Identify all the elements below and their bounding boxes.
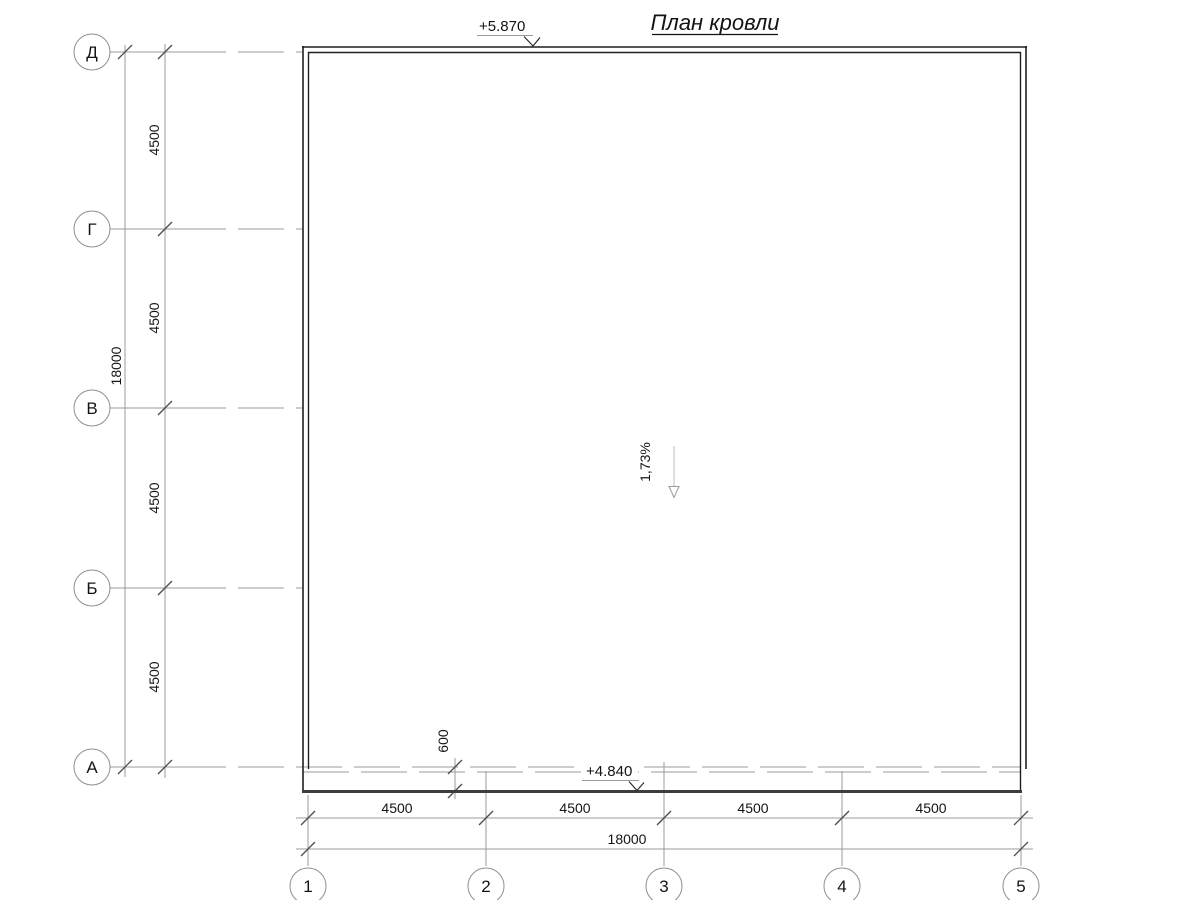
row-axis-bubbles: Д Г В Б А <box>74 34 110 785</box>
axis-label-a: А <box>86 758 98 777</box>
dimension-ticks <box>118 45 1028 856</box>
axis-label-3: 3 <box>659 877 668 896</box>
dimension-lines <box>125 44 1033 866</box>
roof-outline <box>302 46 1027 792</box>
dim-label: 4500 <box>381 800 412 816</box>
slope-label: 1,73% <box>637 442 653 482</box>
slope-arrow-head-icon <box>669 487 679 498</box>
elevation-mark-bottom: +4.840 <box>582 763 644 791</box>
elevation-arrow-icon <box>524 37 540 47</box>
eave-offset-label: 600 <box>435 729 451 753</box>
total-dim-label: 18000 <box>608 831 647 847</box>
row-axis-grid-lines <box>110 52 1020 772</box>
eave-elevation-label: +4.840 <box>586 763 632 780</box>
roof-plan-drawing: +5.870 +4.840 1,73% 4500 4500 4500 4500 … <box>0 0 1200 900</box>
axis-label-4: 4 <box>837 877 846 896</box>
axis-label-1: 1 <box>303 877 312 896</box>
elevation-arrow-icon <box>629 782 644 791</box>
axis-label-d: Д <box>86 43 98 62</box>
dim-label: 4500 <box>915 800 946 816</box>
roof-top-elevation-label: +5.870 <box>479 18 525 35</box>
axis-label-g: Г <box>87 220 96 239</box>
axis-label-v: В <box>86 399 97 418</box>
col-axis-bubbles: 1 2 3 4 5 <box>290 868 1039 900</box>
axis-label-5: 5 <box>1016 877 1025 896</box>
roof-plan-canvas: +5.870 +4.840 1,73% 4500 4500 4500 4500 … <box>0 0 1200 900</box>
page-title: План кровли <box>650 10 779 35</box>
slope-arrow: 1,73% <box>637 442 679 497</box>
axis-label-2: 2 <box>481 877 490 896</box>
dim-label: 4500 <box>146 302 162 333</box>
dim-label: 4500 <box>737 800 768 816</box>
dim-label: 4500 <box>559 800 590 816</box>
dim-label: 4500 <box>146 124 162 155</box>
dim-label: 4500 <box>146 482 162 513</box>
axis-label-b: Б <box>86 579 97 598</box>
total-dim-label: 18000 <box>108 346 124 385</box>
dim-label: 4500 <box>146 661 162 692</box>
elevation-mark-top: +5.870 <box>477 18 540 46</box>
title-block: План кровли <box>650 10 779 35</box>
